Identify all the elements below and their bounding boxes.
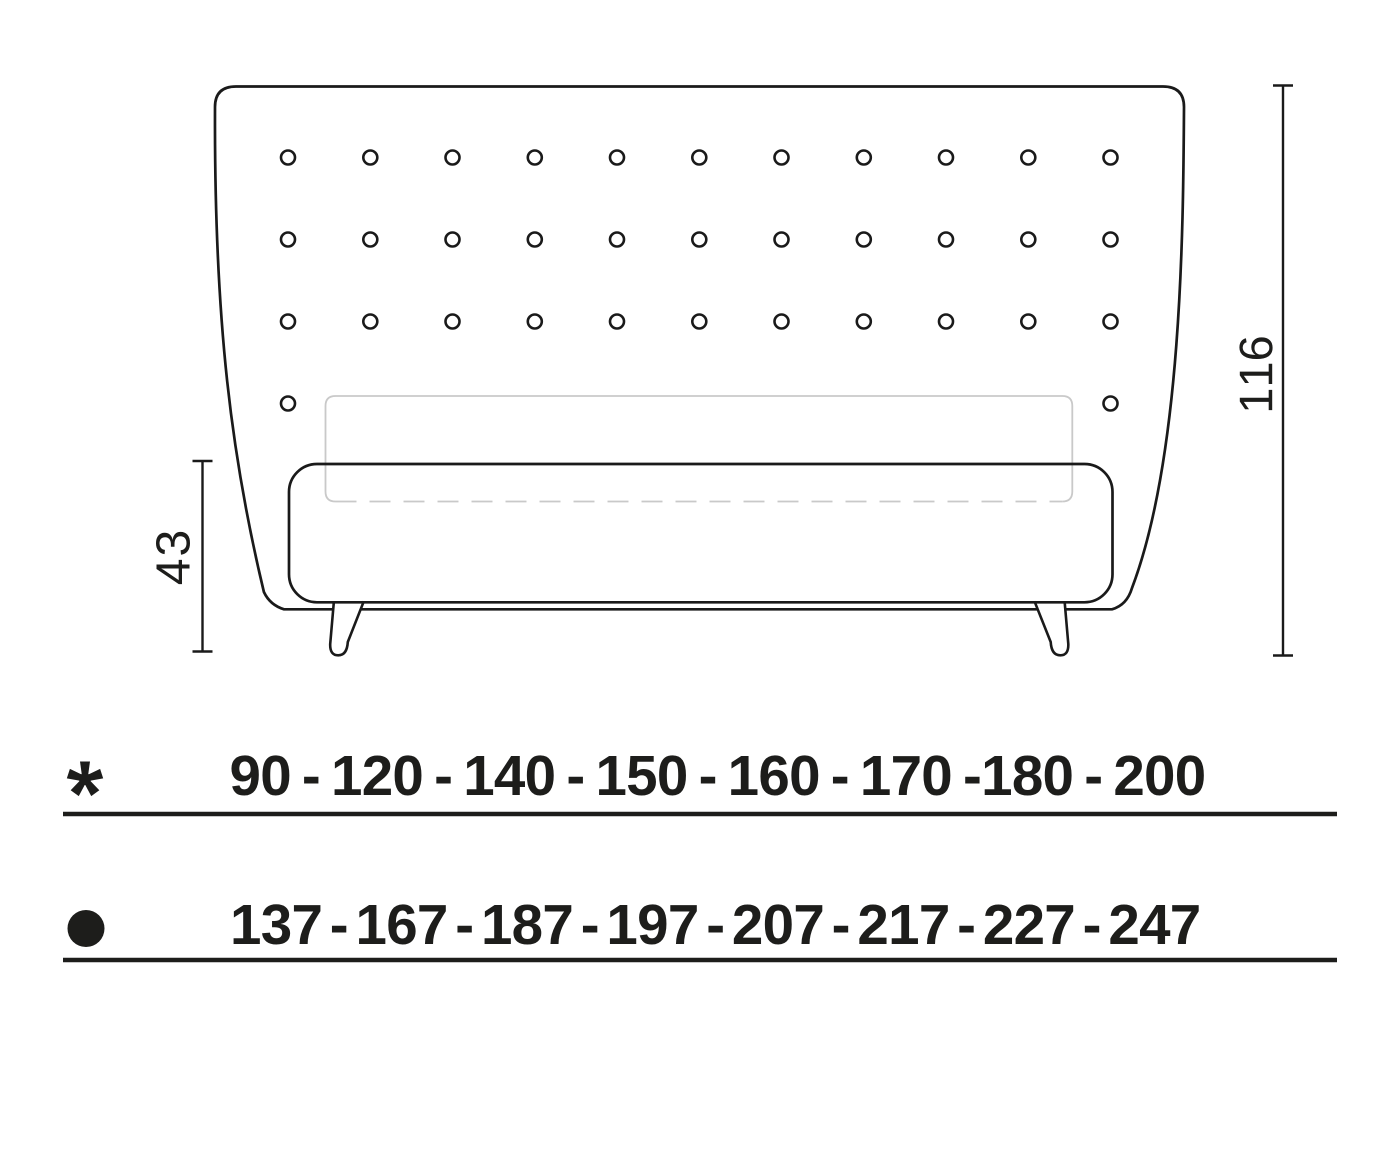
svg-text:137 - 167 - 187 - 197 - 207 -: 137 - 167 - 187 - 197 - 207 - 217 - 227 … xyxy=(230,893,1201,956)
svg-text:90 - 120 - 140 - 150 - 160 - 1: 90 - 120 - 140 - 150 - 160 - 170 -180 - … xyxy=(230,744,1206,807)
